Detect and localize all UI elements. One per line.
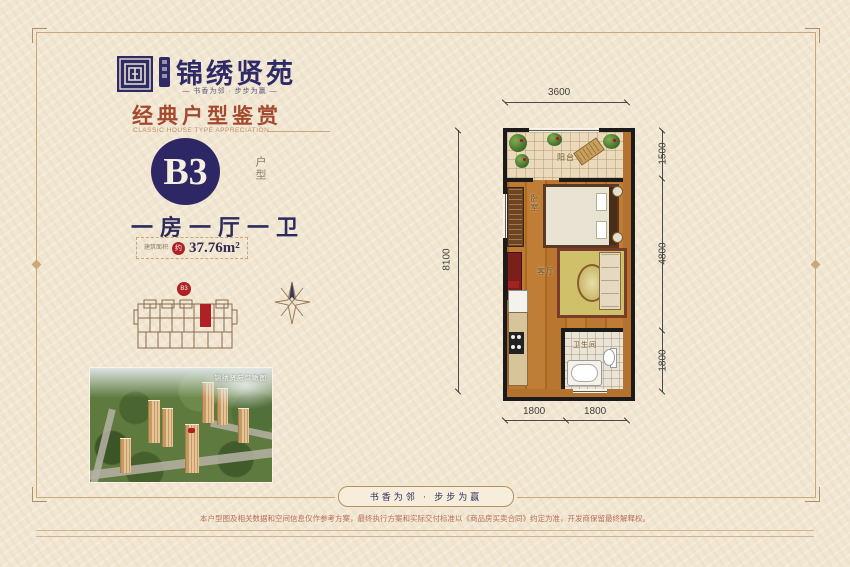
edge-ornament <box>32 260 42 270</box>
bed-icon <box>543 184 619 248</box>
dim-left: 8100 <box>442 248 453 270</box>
bottom-rule <box>36 530 814 531</box>
wall <box>561 328 623 332</box>
area-value: 37.76m² <box>189 240 240 257</box>
corner-ornament <box>805 487 820 502</box>
photo-logo-dot <box>188 428 195 433</box>
window <box>573 389 607 393</box>
photo-tower <box>238 408 249 443</box>
photo-tower <box>162 408 173 447</box>
nightstand-icon <box>612 186 623 197</box>
page: 锦绣贤苑 — 书香为邻 · 步步为赢 — 经典户型鉴赏 CLASSIC HOUS… <box>0 0 850 567</box>
dim-right-2: 4800 <box>658 242 669 264</box>
unit-type-label: 户型 <box>252 156 268 182</box>
brand-tagline: — 书香为邻 · 步步为赢 — <box>150 86 310 96</box>
photo-caption: 锦绣贤苑鸟瞰图 <box>215 372 268 382</box>
corner-ornament <box>805 28 820 43</box>
kitchen-appliance-icon <box>508 281 519 288</box>
room-label-bedroom: 卧室 <box>529 194 540 212</box>
plant-icon <box>515 154 529 168</box>
section-title: 经典户型鉴赏 <box>132 100 282 130</box>
section-subtitle: CLASSIC HOUSE TYPE APPRECIATION <box>133 127 269 134</box>
plant-icon <box>603 134 620 149</box>
brand-seal-icon <box>116 55 154 93</box>
unit-code: B3 <box>163 150 207 194</box>
corner-ornament <box>32 487 47 502</box>
room-label-bathroom: 卫生间 <box>573 340 597 350</box>
plant-icon <box>547 133 562 146</box>
highlighted-unit <box>200 304 211 327</box>
sofa-icon <box>599 252 621 310</box>
room-label-balcony: 阳台 <box>557 152 575 163</box>
dim-right-1: 1500 <box>658 142 669 164</box>
edge-ornament <box>811 260 821 270</box>
fridge-icon <box>508 290 528 314</box>
aerial-photo: 锦绣贤苑鸟瞰图 <box>90 368 272 482</box>
bathtub-icon <box>567 360 602 386</box>
toilet-icon <box>603 346 617 368</box>
bottom-rule <box>36 536 814 537</box>
window <box>529 128 599 132</box>
wall <box>561 328 565 389</box>
seal-ribbon-icon <box>159 57 170 87</box>
area-label: 建筑面积 <box>144 245 168 252</box>
wall <box>559 178 623 182</box>
footer-banner: 书香为邻 · 步步为赢 <box>338 486 514 507</box>
floorplan: 阳台 卧室 客厅 卫生间 <box>503 128 635 401</box>
plant-icon <box>509 134 527 152</box>
compass-icon <box>272 278 312 326</box>
stove-icon <box>509 332 524 354</box>
photo-tower <box>148 400 160 443</box>
dim-line-top <box>505 102 627 103</box>
disclaimer: 本户型图及相关数据和空间信息仅作参考方案，最终执行方案和实际交付标准以《商品房买… <box>125 513 725 524</box>
corner-ornament <box>32 28 47 43</box>
dim-top: 3600 <box>548 87 570 98</box>
dim-line-left <box>458 130 459 392</box>
approx-badge: 约 <box>172 242 185 255</box>
unit-badge: B3 <box>151 138 220 205</box>
wall <box>507 178 533 182</box>
siteplan: B3 <box>130 274 330 362</box>
dim-bottom-2: 1800 <box>584 406 606 417</box>
photo-tower <box>120 438 131 473</box>
nightstand-icon <box>612 232 623 243</box>
room-label-living: 客厅 <box>537 266 555 277</box>
area-box: 建筑面积 约 37.76m² <box>136 237 248 259</box>
wardrobe-icon <box>507 187 524 247</box>
subtitle-rule <box>268 131 330 132</box>
dim-right-3: 1800 <box>658 349 669 371</box>
siteplan-unit-marker: B3 <box>177 282 191 296</box>
dim-bottom-1: 1800 <box>523 406 545 417</box>
